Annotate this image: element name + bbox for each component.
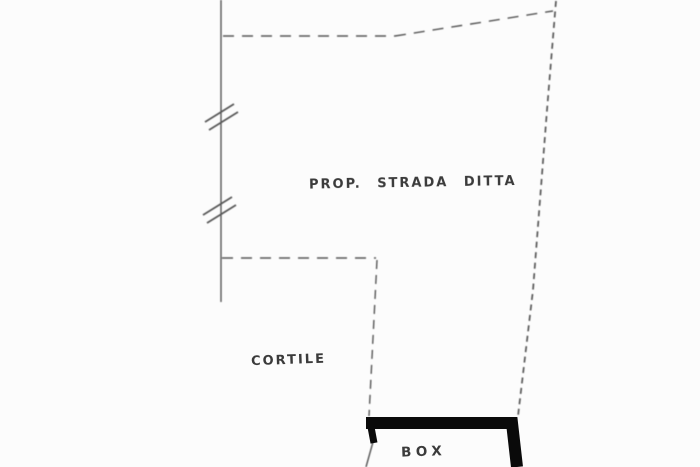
street-parcel-label: PROP. STRADA DITTA	[309, 174, 517, 193]
boundary-lines-group	[203, 0, 556, 467]
garage-left-wall-line	[366, 442, 373, 467]
site-plan-drawing: PROP. STRADA DITTA CORTILE BOX	[0, 0, 700, 467]
right-boundary-dashed-line	[518, 1, 556, 416]
top-right-angled-dashed-line	[395, 11, 553, 36]
garage-left-wall-stub	[371, 427, 374, 443]
courtyard-label: CORTILE	[251, 352, 326, 370]
courtyard-right-dashed-line	[369, 260, 377, 416]
garage-label: BOX	[401, 443, 447, 461]
scanned-plan-page: PROP. STRADA DITTA CORTILE BOX	[0, 0, 700, 467]
